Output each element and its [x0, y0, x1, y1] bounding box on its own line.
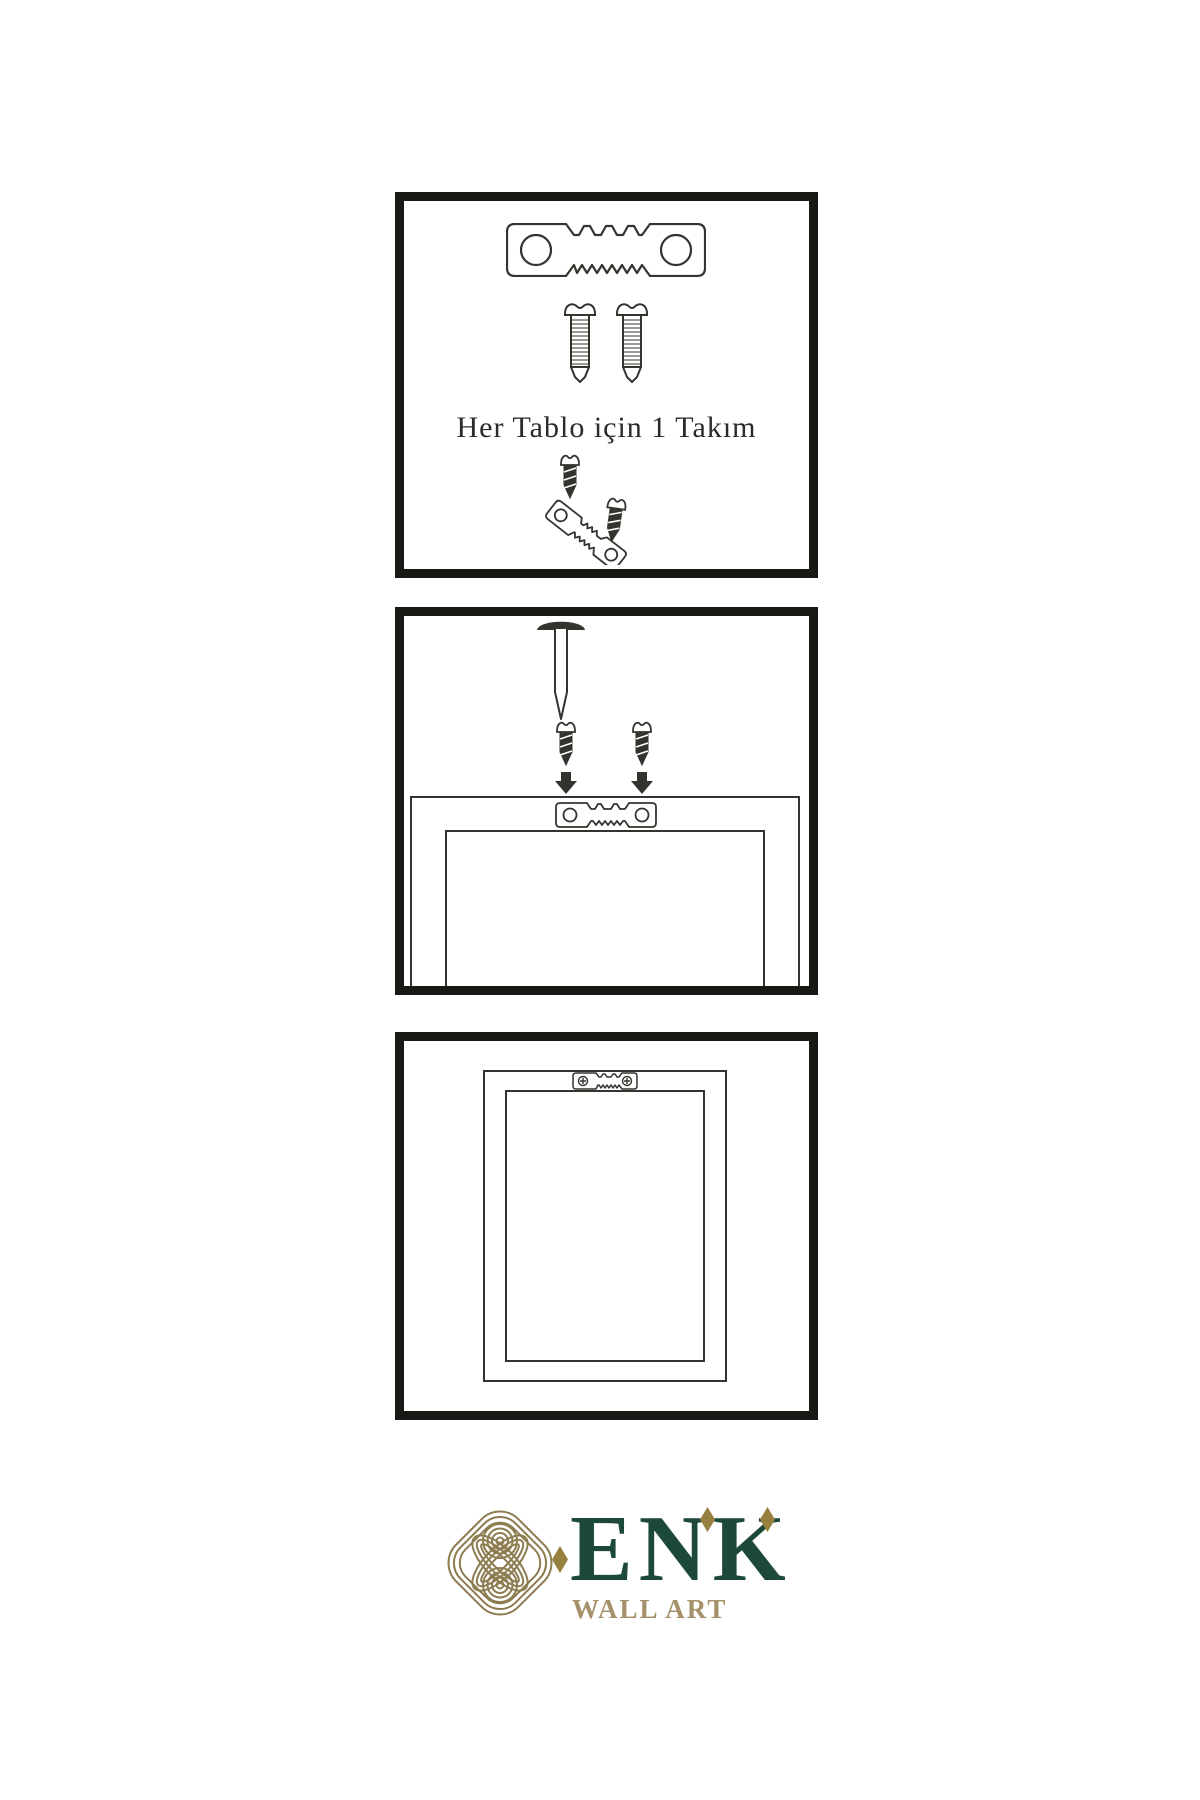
down-arrow-icon: [631, 772, 653, 794]
brand-tagline: WALL ART: [572, 1594, 727, 1624]
mounted-hanger-icon: [572, 1072, 638, 1095]
down-arrow-icon: [555, 772, 577, 794]
step-panel-frame-hung: [395, 1032, 818, 1420]
brand-name: ENK: [570, 1502, 792, 1596]
hanger-assembly-icon: [542, 453, 662, 570]
step-panel-attach-hanger: [395, 607, 818, 995]
sawtooth-hanger-icon: [506, 223, 706, 282]
sawtooth-hanger-on-frame-icon: [555, 802, 657, 833]
diamond-icon: [700, 1507, 715, 1537]
frame-back-inner-edge: [445, 830, 765, 995]
screw-icon: [562, 301, 598, 390]
nail-icon: [531, 616, 591, 733]
instruction-sheet: Her Tablo için 1 Takım: [0, 0, 1200, 1800]
diamond-icon: [760, 1507, 775, 1537]
kit-caption: Her Tablo için 1 Takım: [404, 411, 809, 445]
dark-screw-with-arrow-icon: [622, 720, 662, 801]
knot-logo-icon: [440, 1500, 560, 1632]
dark-screw-with-arrow-icon: [546, 720, 586, 801]
step-panel-hardware-kit: Her Tablo için 1 Takım: [395, 192, 818, 578]
diamond-icon: [552, 1546, 568, 1578]
hung-frame-inner: [505, 1090, 705, 1362]
screw-icon: [614, 301, 650, 390]
